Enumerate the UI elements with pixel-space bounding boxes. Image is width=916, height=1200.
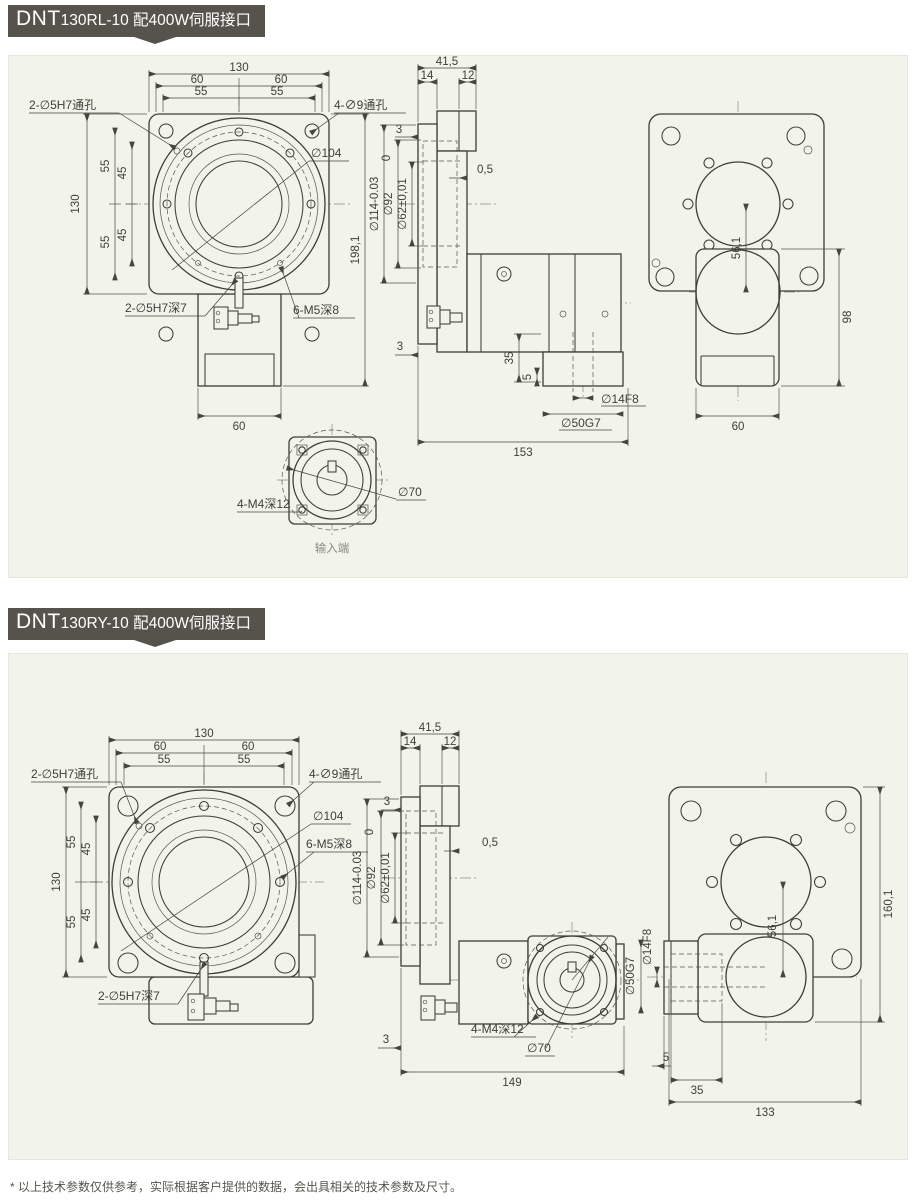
dim-side-d50g7: ∅50G7 [561, 416, 601, 430]
dim-front-55-right: 55 [271, 86, 284, 98]
dim-front-55-bottom: 55 [66, 916, 78, 929]
label-through-holes: 4-∅9通孔 [309, 767, 362, 781]
title-pointer [122, 636, 188, 647]
drawing-panel-dnt130rl: 130 60 60 55 55 130 55 55 45 45 198,1 60… [8, 55, 908, 578]
front-view-geometry [87, 772, 324, 1024]
footer-disclaimer: * 以上技术参数仅供参考，实际根据客户提供的数据，会出具相关的技术参数及尺寸。 [10, 1178, 462, 1195]
dim-front-55-right: 55 [238, 754, 251, 766]
dim-side-d92: ∅92 [383, 193, 395, 216]
dim-side-3-bottom: 3 [383, 1034, 389, 1046]
dim-front-45-bottom: 45 [117, 229, 129, 242]
label-pin-deep: 2-∅5H7深7 [98, 989, 160, 1003]
model-text: 130RY-10 配400W伺服接口 [61, 615, 251, 632]
label-m5-holes: 6-M5深8 [306, 837, 352, 851]
dim-side-05: 0,5 [477, 164, 493, 176]
dim-rear-width: 133 [755, 1107, 774, 1119]
dim-side-total: 149 [502, 1077, 521, 1089]
dim-front-45-top: 45 [81, 843, 93, 856]
label-d70: ∅70 [398, 485, 422, 499]
dim-front-55-top: 55 [66, 836, 78, 849]
dim-side-d14f8: ∅14F8 [601, 392, 639, 406]
dim-front-45-top: 45 [117, 167, 129, 180]
rear-view-geometry [647, 772, 861, 1041]
dim-front-60-left: 60 [191, 74, 204, 86]
dim-front-55-left: 55 [158, 754, 171, 766]
dim-side-3-bottom: 3 [397, 341, 403, 353]
label-m4-holes: 4-M4深12 [237, 497, 290, 511]
dim-side-d92: ∅92 [366, 867, 378, 890]
cad-drawing-dnt130rl: 130 60 60 55 55 130 55 55 45 45 198,1 60… [9, 56, 907, 577]
product-title-dnt130ry: DNT130RY-10 配400W伺服接口 [8, 608, 265, 640]
dim-front-width: 130 [194, 728, 213, 740]
dim-rear-60: 60 [732, 421, 745, 433]
dim-front-55-top: 55 [100, 160, 112, 173]
title-pointer [122, 33, 188, 44]
dim-side-35: 35 [504, 352, 516, 365]
label-pin-deep: 2-∅5H7深7 [125, 301, 187, 315]
dim-front-total-height: 198,1 [350, 236, 362, 265]
brand-text: DNT [16, 610, 61, 633]
dim-side-d114: ∅114-0.03 [369, 177, 381, 232]
dim-rear-561: 56,1 [731, 237, 743, 259]
dim-front-60-right: 60 [275, 74, 288, 86]
dim-side-tol0: 0 [364, 829, 376, 835]
dim-front-45-bottom: 45 [81, 909, 93, 922]
dim-side-width: 41,5 [419, 722, 441, 734]
dim-side-width: 41,5 [436, 56, 458, 68]
dim-rear-98: 98 [842, 311, 854, 324]
dim-side-3-top: 3 [384, 796, 390, 808]
label-pin-through-holes: 2-∅5H7通孔 [31, 767, 98, 781]
dim-side-d114: ∅114-0.03 [352, 851, 364, 906]
dim-rear-d14f8: ∅14F8 [642, 929, 654, 965]
dim-rear-561: 56,1 [767, 915, 779, 937]
product-title-dnt130rl: DNT130RL-10 配400W伺服接口 [8, 5, 265, 37]
dim-front-width: 130 [229, 62, 248, 74]
label-through-holes: 4-∅9通孔 [334, 98, 387, 112]
brand-text: DNT [16, 7, 61, 30]
dim-side-12: 12 [462, 70, 475, 82]
front-view-geometry [125, 96, 353, 386]
side-view-geometry [404, 111, 631, 398]
dim-side-05: 0,5 [482, 837, 498, 849]
dim-side-tol0: 0 [381, 155, 393, 161]
dim-side-d62: ∅62±0,01 [397, 178, 409, 230]
dim-rear-5: 5 [663, 1052, 669, 1064]
dim-rear-35: 35 [691, 1085, 704, 1097]
dim-rear-d50g7: ∅50G7 [625, 957, 637, 995]
model-text: 130RL-10 配400W伺服接口 [61, 12, 251, 29]
dim-front-55-bottom: 55 [100, 236, 112, 249]
label-d104: ∅104 [311, 146, 342, 160]
dim-rear-height: 160,1 [883, 890, 895, 919]
dim-front-55-left: 55 [195, 86, 208, 98]
dim-side-5: 5 [522, 374, 534, 380]
side-view-dimensions: 41,5 14 12 3 0,5 ∅114-0.03 0 ∅92 ∅62±0,0… [352, 722, 624, 1089]
dim-front-height: 130 [70, 194, 82, 213]
dim-front-height: 130 [51, 872, 63, 891]
drawing-panel-dnt130ry: 130 60 60 55 55 130 55 55 45 45 2-∅5H7通孔… [8, 653, 908, 1160]
caption-input-end: 输入端 [315, 541, 350, 555]
label-m5-holes: 6-M5深8 [293, 303, 339, 317]
dim-side-14: 14 [421, 70, 434, 82]
dim-side-d62: ∅62±0,01 [380, 852, 392, 904]
dim-front-60-right: 60 [242, 741, 255, 753]
dim-side-12: 12 [444, 736, 457, 748]
label-d70: ∅70 [527, 1041, 551, 1055]
label-m4-holes: 4-M4深12 [471, 1022, 524, 1036]
side-view-geometry [384, 786, 639, 1038]
cad-drawing-dnt130ry: 130 60 60 55 55 130 55 55 45 45 2-∅5H7通孔… [9, 654, 907, 1159]
dim-front-motor-width: 60 [233, 421, 246, 433]
label-d104: ∅104 [313, 809, 344, 823]
dim-side-14: 14 [404, 736, 417, 748]
dim-side-total: 153 [513, 447, 532, 459]
label-pin-through-holes: 2-∅5H7通孔 [29, 98, 96, 112]
dim-front-60-left: 60 [154, 741, 167, 753]
dim-side-3-top: 3 [396, 124, 402, 136]
